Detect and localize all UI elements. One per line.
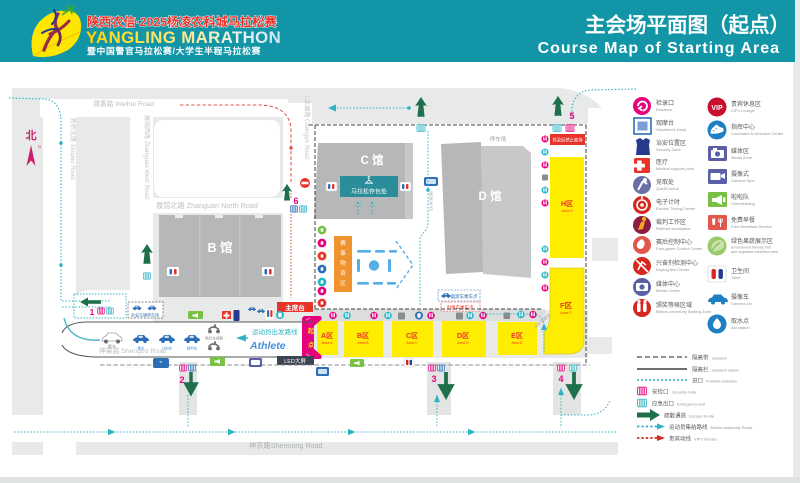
svg-text:A区: A区 — [321, 332, 333, 340]
svg-text:北: 北 — [26, 128, 37, 142]
svg-text:裁判工作区: 裁判工作区 — [656, 218, 686, 226]
svg-text:VIP's Routes: VIP's Routes — [694, 437, 717, 442]
svg-text:新桥北路 Xinqiao Road: 新桥北路 Xinqiao Road — [69, 118, 77, 180]
svg-text:隔离栏: 隔离栏 — [692, 366, 709, 374]
svg-text:主会场平面图（起点）: 主会场平面图（起点） — [585, 13, 790, 37]
svg-text:物: 物 — [340, 259, 346, 267]
svg-text:1: 1 — [90, 307, 95, 317]
svg-text:Camera Spot: Camera Spot — [731, 178, 755, 183]
svg-text:Area F: Area F — [560, 311, 572, 315]
svg-text:颁奖等候区域: 颁奖等候区域 — [656, 301, 692, 309]
svg-text:计时车: 计时车 — [162, 346, 173, 351]
svg-text:Toilet: Toilet — [731, 275, 741, 280]
svg-text:Escape Route: Escape Route — [689, 414, 715, 419]
svg-text:Free Breakfast Service: Free Breakfast Service — [731, 224, 772, 229]
svg-text:Security Gate: Security Gate — [672, 390, 697, 395]
svg-text:摄像车: 摄像车 — [731, 293, 749, 301]
svg-text:F区: F区 — [560, 301, 573, 310]
svg-text:点: 点 — [308, 341, 314, 349]
svg-text:Medical support point: Medical support point — [656, 166, 695, 171]
svg-text:Doping test Center: Doping test Center — [656, 267, 690, 272]
svg-text:主席台: 主席台 — [285, 303, 305, 312]
svg-text:Area H: Area H — [561, 209, 573, 213]
svg-text:赛: 赛 — [340, 239, 346, 247]
svg-text:警车: 警车 — [138, 346, 145, 351]
svg-text:VIP's Lounge: VIP's Lounge — [731, 108, 755, 113]
svg-text:LED大屏: LED大屏 — [284, 357, 306, 365]
svg-text:Area E: Area E — [512, 341, 524, 345]
svg-text:Area B: Area B — [358, 341, 370, 345]
svg-text:6: 6 — [293, 196, 298, 206]
svg-text:检录口: 检录口 — [656, 99, 674, 107]
svg-text:D区: D区 — [457, 332, 469, 340]
svg-text:and vegetable exhibition area: and vegetable exhibition area — [731, 250, 778, 254]
svg-text:3: 3 — [431, 374, 436, 384]
svg-text:点: 点 — [429, 205, 433, 211]
svg-text:Area A: Area A — [322, 341, 333, 345]
svg-text:媒体中心: 媒体中心 — [656, 280, 680, 288]
svg-text:B 馆: B 馆 — [207, 240, 232, 255]
svg-text:免费早餐: 免费早餐 — [731, 216, 755, 224]
svg-text:Athlete Assembly Route: Athlete Assembly Route — [710, 425, 753, 430]
svg-text:疏散通道: 疏散通道 — [664, 412, 687, 420]
svg-text:贵宾动线: 贵宾动线 — [669, 435, 692, 443]
svg-text:贵宾休息区: 贵宾休息区 — [731, 100, 761, 108]
svg-text:裁判车: 裁判车 — [187, 346, 198, 351]
svg-text:运动员出发路线: 运动员出发路线 — [252, 327, 298, 336]
svg-text:卫生间: 卫生间 — [731, 267, 749, 275]
svg-text:神农路Shennong Road: 神农路Shennong Road — [249, 441, 323, 450]
svg-text:进口: 进口 — [692, 377, 703, 385]
svg-text:Referee workspace: Referee workspace — [656, 226, 691, 231]
svg-text:事: 事 — [340, 249, 346, 257]
svg-text:Environment friendly fruit: Environment friendly fruit — [731, 246, 771, 250]
svg-text:渭惠路 Weihui Road: 渭惠路 Weihui Road — [93, 99, 154, 108]
svg-text:Isolation Stand: Isolation Stand — [712, 368, 738, 373]
svg-text:Media Zone: Media Zone — [731, 155, 753, 160]
svg-text:2: 2 — [179, 375, 184, 385]
svg-text:展馆西路 Zhanguan West Road: 展馆西路 Zhanguan West Road — [143, 115, 151, 199]
svg-text:4: 4 — [558, 374, 563, 384]
svg-text:隔离带: 隔离带 — [692, 354, 709, 362]
svg-text:社会车辆停车场: 社会车辆停车场 — [131, 312, 159, 318]
svg-text:Portable Isolation: Portable Isolation — [706, 379, 737, 384]
svg-text:Cheerleading: Cheerleading — [731, 201, 755, 206]
svg-text:Area D: Area D — [457, 341, 469, 345]
svg-text:媒体区: 媒体区 — [731, 147, 749, 155]
svg-text:Before-ceremony Waiting Zone: Before-ceremony Waiting Zone — [656, 309, 712, 314]
svg-text:Camera car: Camera car — [731, 301, 753, 306]
svg-text:兴奋剂检测中心: 兴奋剂检测中心 — [656, 259, 698, 267]
svg-text:起: 起 — [307, 327, 315, 335]
svg-text:Aid station: Aid station — [731, 325, 750, 330]
svg-text:Volunteer's Desk: Volunteer's Desk — [656, 127, 686, 132]
svg-text:区: 区 — [340, 280, 346, 287]
svg-text:啦啦队: 啦啦队 — [731, 193, 749, 201]
svg-text:C 馆: C 馆 — [361, 153, 385, 167]
svg-text:YANGLING MARATHON: YANGLING MARATHON — [86, 28, 281, 47]
svg-text:Entrance: Entrance — [656, 107, 673, 112]
svg-text:Security Zone: Security Zone — [656, 147, 681, 152]
svg-text:绿色果蔬展示区: 绿色果蔬展示区 — [731, 237, 773, 245]
svg-text:Electric Timing Center: Electric Timing Center — [656, 206, 696, 211]
svg-text:停车场: 停车场 — [490, 135, 507, 143]
svg-text:Quit&Control: Quit&Control — [656, 186, 679, 191]
svg-text:检录后禁止离场: 检录后禁止离场 — [552, 137, 583, 144]
svg-text:资: 资 — [340, 269, 346, 277]
svg-text:安检口: 安检口 — [652, 388, 669, 396]
svg-text:运动员集结路线: 运动员集结路线 — [669, 423, 708, 431]
svg-text:警车: 警车 — [108, 343, 116, 349]
svg-text:取水点: 取水点 — [731, 317, 749, 325]
svg-text:5: 5 — [569, 111, 574, 121]
svg-text:Media Center: Media Center — [656, 288, 681, 293]
svg-text:VIP: VIP — [711, 105, 723, 112]
svg-text:暨中国警官马拉松赛/大学生半程马拉松赛: 暨中国警官马拉松赛/大学生半程马拉松赛 — [87, 45, 261, 56]
svg-text:Post-game Control Center: Post-game Control Center — [656, 246, 703, 251]
svg-text:Emergency Exit: Emergency Exit — [677, 402, 706, 407]
svg-text:指挥中心: 指挥中心 — [731, 123, 755, 131]
svg-text:竞取处: 竞取处 — [656, 178, 674, 186]
svg-text:治安位置区: 治安位置区 — [656, 139, 686, 147]
svg-text:医疗: 医疗 — [656, 158, 668, 166]
svg-text:摆渡车乘车点: 摆渡车乘车点 — [451, 293, 478, 300]
svg-text:Course Map of Starting Area: Course Map of Starting Area — [538, 40, 780, 57]
svg-text:马拉松存包处: 马拉松存包处 — [351, 188, 387, 196]
svg-text:观摩台: 观摩台 — [656, 119, 674, 127]
svg-text:Athlete: Athlete — [249, 340, 286, 352]
svg-text:H区: H区 — [561, 200, 573, 208]
svg-text:Command & Direction Center: Command & Direction Center — [731, 131, 784, 136]
svg-text:电子计时: 电子计时 — [656, 198, 680, 206]
svg-text:摩托车骑警: 摩托车骑警 — [205, 336, 223, 341]
svg-text:Area C: Area C — [406, 341, 418, 345]
svg-text:出租车乘车点: 出租车乘车点 — [447, 304, 474, 311]
svg-text:B区: B区 — [357, 332, 369, 340]
svg-text:L会展路 Changye Road: L会展路 Changye Road — [303, 96, 311, 159]
svg-text:应急出口: 应急出口 — [652, 400, 674, 408]
svg-text:展馆北路 Zhanguan North Road: 展馆北路 Zhanguan North Road — [156, 201, 258, 210]
svg-text:N: N — [38, 144, 41, 149]
svg-text:摄像式: 摄像式 — [731, 170, 749, 178]
svg-text:赛后控制中心: 赛后控制中心 — [656, 238, 692, 246]
svg-text:陕西农信·2025杨凌农科城马拉松赛: 陕西农信·2025杨凌农科城马拉松赛 — [87, 14, 277, 29]
svg-text:Isolation: Isolation — [712, 356, 727, 361]
svg-text:E区: E区 — [511, 332, 523, 340]
svg-text:D 馆: D 馆 — [479, 189, 503, 203]
svg-text:C区: C区 — [406, 332, 418, 340]
